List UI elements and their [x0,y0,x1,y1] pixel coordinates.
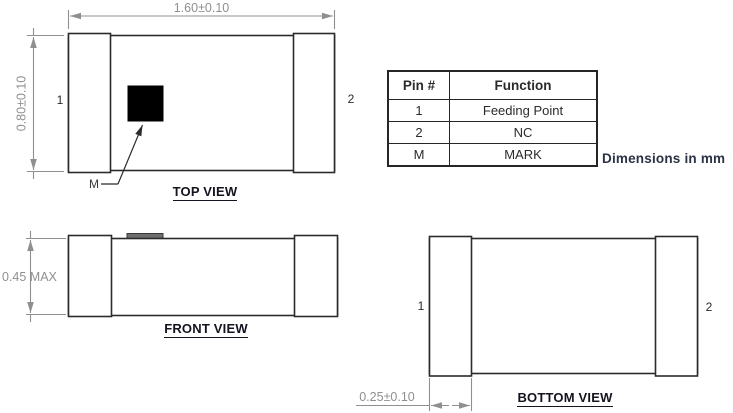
top-view-terminal-2 [294,34,335,173]
pin-cell: 1 [388,100,450,122]
front-view-title: FRONT VIEW [141,321,271,336]
drawing-linework [0,0,733,413]
function-cell: Feeding Point [450,100,598,122]
front-view-height-dim-label: 0.45 MAX [2,270,64,284]
bottom-view-pin1-label: 1 [413,299,429,313]
component-dimension-drawing: 1.60±0.10 0.80±0.10 1 2 M TOP VIEW Pin #… [0,0,733,413]
top-view-title: TOP VIEW [140,184,270,199]
front-view-terminal-2 [295,236,338,317]
pin-cell: M [388,144,450,167]
front-view-terminal-1 [69,236,112,317]
bottom-view-pin2-label: 2 [701,300,717,314]
function-cell: MARK [450,144,598,167]
pin-cell: 2 [388,122,450,144]
pin-function-table: Pin # Function 1 Feeding Point 2 NC M MA… [387,70,598,167]
dimensions-unit-note: Dimensions in mm [602,151,725,166]
bottom-view-body [430,237,698,377]
function-cell: NC [450,122,598,144]
pin-column-header: Pin # [388,71,450,100]
top-view-width-dim-label: 1.60±0.10 [68,1,335,15]
mark-label: M [89,177,99,191]
top-view-height-dim-label: 0.80±0.10 [15,64,30,144]
table-row: M MARK [388,144,597,167]
bottom-view-terminal-1 [430,237,472,377]
top-view-pin1-label: 1 [52,93,68,107]
front-view-body [69,234,338,317]
mark-square [128,86,163,121]
bottom-view-title: BOTTOM VIEW [500,390,630,405]
table-header-row: Pin # Function [388,71,597,100]
function-column-header: Function [450,71,598,100]
bottom-view-terminal-dim-label: 0.25±0.10 [355,390,419,404]
top-view-body [69,34,335,173]
bottom-view-terminal-2 [656,237,698,377]
table-row: 2 NC [388,122,597,144]
top-view-pin2-label: 2 [343,92,359,106]
table-row: 1 Feeding Point [388,100,597,122]
top-view-terminal-1 [69,34,111,173]
